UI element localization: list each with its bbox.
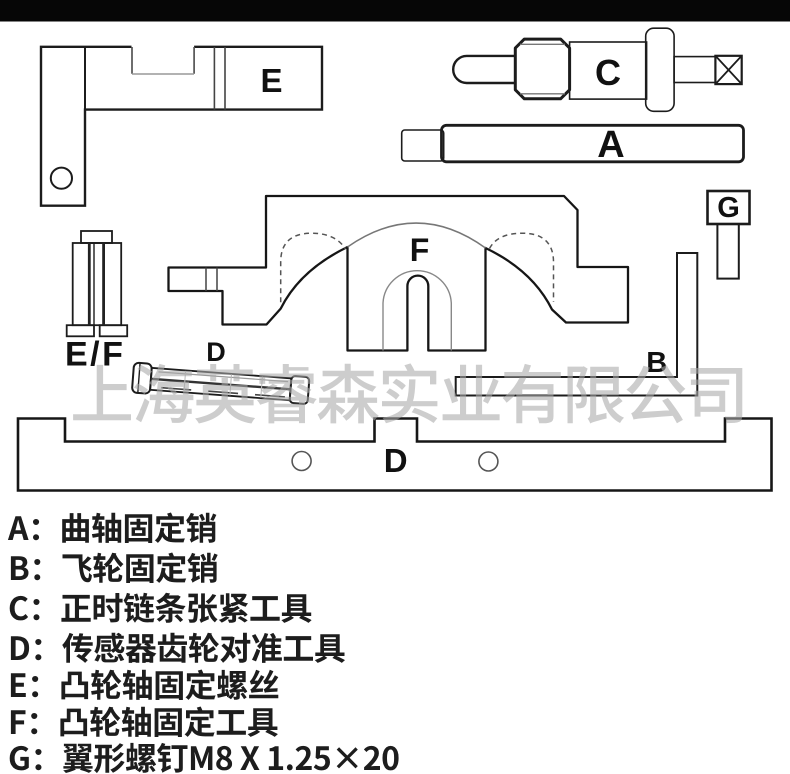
svg-text:C: C	[595, 52, 621, 93]
svg-text:D: D	[384, 442, 408, 479]
svg-text:E/F: E/F	[65, 336, 125, 374]
svg-text:A: A	[597, 124, 624, 166]
svg-text:E: E	[260, 62, 282, 99]
svg-text:G: G	[717, 192, 740, 224]
svg-text:D: D	[206, 337, 226, 367]
svg-text:F: F	[410, 232, 430, 268]
svg-text:B: B	[646, 347, 667, 379]
